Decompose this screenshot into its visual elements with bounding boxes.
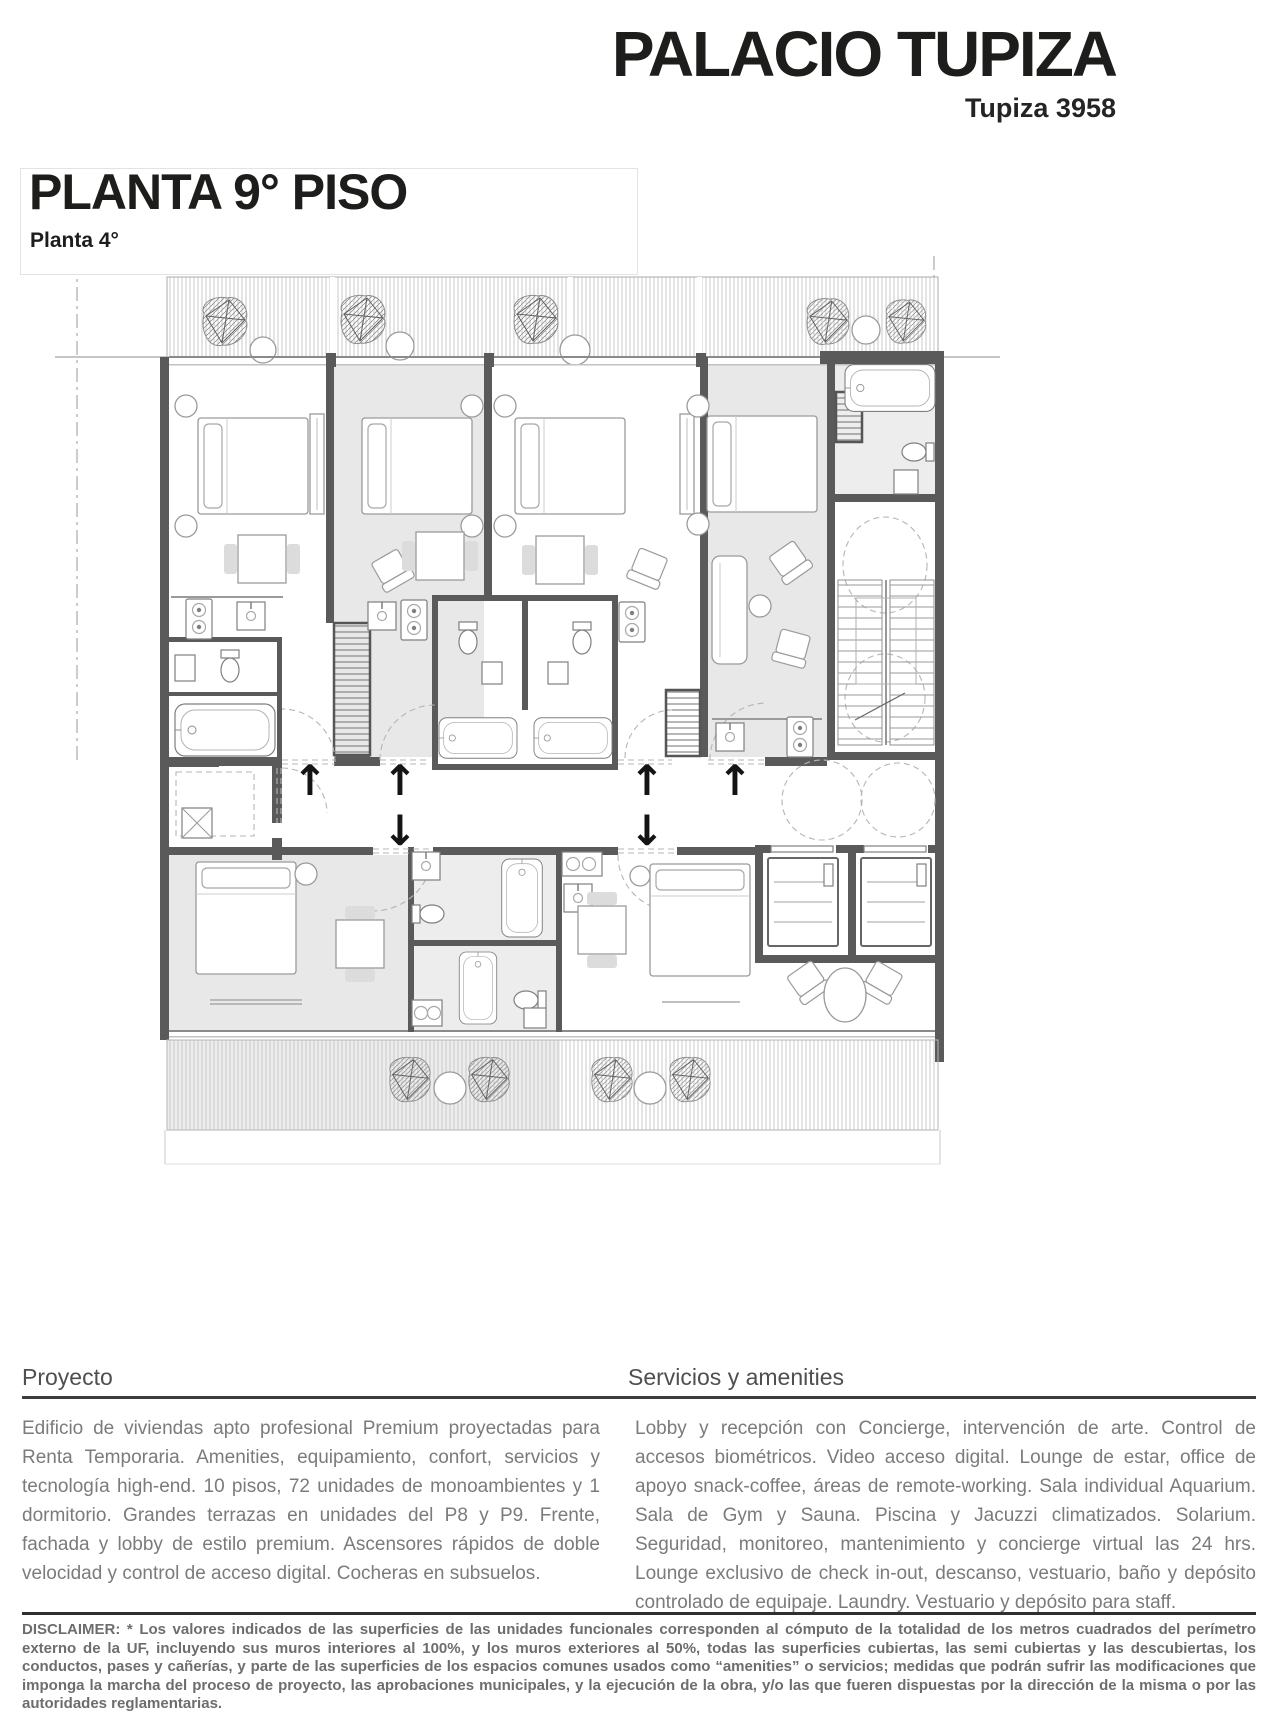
tree-icon xyxy=(592,1057,632,1101)
tree-icon xyxy=(807,299,849,345)
elevator-car xyxy=(861,858,931,946)
lounge xyxy=(785,959,905,1022)
tree-icon xyxy=(514,295,558,343)
stairwell xyxy=(838,517,934,745)
terrace-table xyxy=(560,335,590,365)
tree-icon xyxy=(390,1057,430,1101)
terrace-table xyxy=(634,1072,666,1104)
unit-1 xyxy=(171,395,324,756)
disclaimer-text: DISCLAIMER: * Los valores indicados de l… xyxy=(22,1621,1256,1714)
floor-plan: ↑ ↑ ↑ ↑ ↓ ↓ xyxy=(55,250,1005,1195)
elevator-car xyxy=(768,858,838,946)
header: PALACIO TUPIZA Tupiza 3958 xyxy=(612,22,1116,124)
disclaimer-label: DISCLAIMER: xyxy=(22,1621,120,1638)
tree-icon xyxy=(203,297,247,345)
section-divider xyxy=(22,1396,1256,1399)
project-description: Edificio de viviendas apto profesional P… xyxy=(22,1414,600,1588)
building-address: Tupiza 3958 xyxy=(612,93,1116,124)
tree-icon xyxy=(341,295,385,343)
disclaimer-divider xyxy=(22,1612,1256,1615)
arrow-up-icon: ↑ xyxy=(292,756,327,805)
bottom-terrace xyxy=(167,1040,938,1130)
arrow-up-icon: ↑ xyxy=(717,756,752,805)
corridor-arrows: ↑ ↑ ↑ ↑ ↓ ↓ xyxy=(292,756,752,855)
plan-subtitle: Planta 4° xyxy=(30,229,119,253)
arrow-down-icon: ↓ xyxy=(382,806,417,855)
arrow-up-icon: ↑ xyxy=(382,756,417,805)
project-heading: Proyecto xyxy=(22,1364,113,1391)
unit-lower-middle xyxy=(578,864,750,1002)
laundry-room xyxy=(176,772,254,838)
plan-title: PLANTA 9° PISO xyxy=(29,163,407,221)
terrace-table xyxy=(852,316,880,344)
tree-icon xyxy=(670,1057,710,1101)
services-description: Lobby y recepción con Concierge, interve… xyxy=(635,1414,1256,1617)
terrace-table xyxy=(434,1072,466,1104)
arrow-down-icon: ↓ xyxy=(629,806,664,855)
arrow-up-icon: ↑ xyxy=(629,756,664,805)
plan-title-box: PLANTA 9° PISO Planta 4° xyxy=(20,168,638,275)
terrace-table xyxy=(386,332,414,360)
services-heading: Servicios y amenities xyxy=(628,1364,844,1391)
building-title: PALACIO TUPIZA xyxy=(612,22,1116,87)
terrace-table xyxy=(250,337,276,363)
disclaimer-body: * Los valores indicados de las superfici… xyxy=(22,1621,1256,1712)
tree-icon xyxy=(469,1057,509,1101)
tree-icon xyxy=(886,300,925,343)
